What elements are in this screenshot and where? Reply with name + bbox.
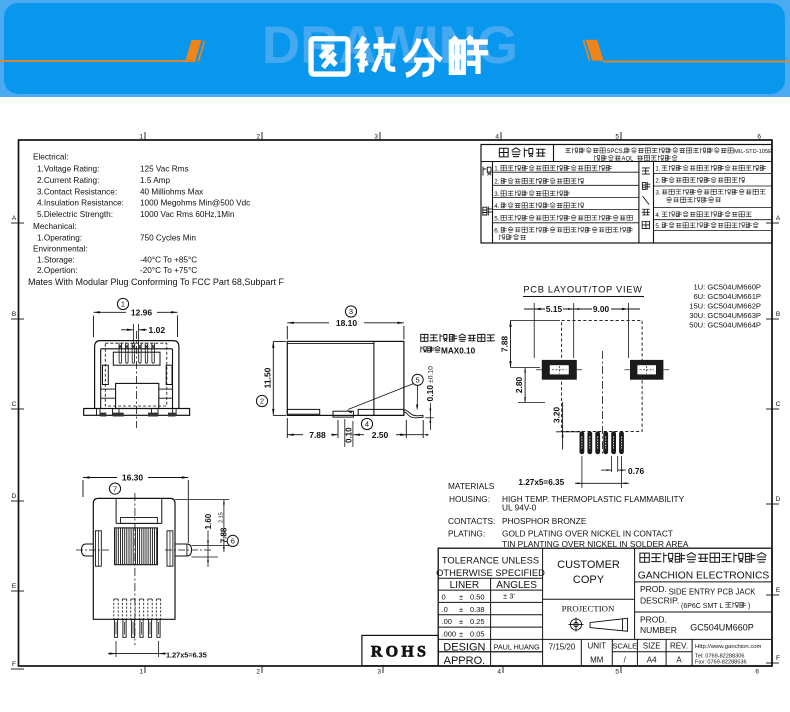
svg-text:COPY: COPY [573, 574, 605, 586]
svg-text:4.: 4. [494, 203, 499, 210]
svg-text:5PCS,: 5PCS, [607, 149, 625, 155]
svg-text:Environmental:: Environmental: [33, 245, 88, 254]
svg-text:E: E [12, 583, 17, 590]
svg-text:ROHS: ROHS [371, 644, 429, 661]
svg-text:15U: GC504UM662P: 15U: GC504UM662P [689, 302, 761, 311]
svg-text:4: 4 [365, 420, 369, 429]
svg-text:16.30: 16.30 [122, 473, 144, 483]
svg-text:2.Opertion:: 2.Opertion: [37, 266, 78, 275]
svg-text:PROJECTION: PROJECTION [562, 604, 615, 614]
svg-text:1: 1 [139, 134, 143, 141]
svg-text:APPRO.: APPRO. [444, 655, 486, 667]
svg-text:D: D [776, 496, 781, 503]
svg-text:AQL: AQL [622, 157, 635, 163]
svg-text:D: D [12, 493, 17, 500]
svg-text:±: ± [459, 617, 463, 626]
svg-text:CONTACTS:: CONTACTS: [448, 516, 495, 526]
svg-text:2.50: 2.50 [372, 430, 389, 440]
svg-text:5.Dielectric Strength:: 5.Dielectric Strength: [37, 210, 113, 219]
svg-text:1.27x5=6.35: 1.27x5=6.35 [518, 478, 564, 487]
svg-text:2.Current Rating:: 2.Current Rating: [37, 176, 99, 185]
svg-text:DESIGN: DESIGN [443, 642, 485, 654]
svg-text:5.: 5. [494, 215, 499, 222]
svg-text:): ) [748, 603, 750, 610]
svg-text:5: 5 [416, 376, 420, 385]
svg-text:3.20: 3.20 [552, 406, 562, 423]
svg-text:PROD.: PROD. [640, 584, 667, 594]
svg-text:HOUSING:: HOUSING: [449, 494, 490, 504]
svg-text:0.10: 0.10 [425, 385, 435, 402]
svg-text:40 Milliohms Max: 40 Milliohms Max [140, 188, 203, 197]
svg-text:3.Contact Resistance:: 3.Contact Resistance: [37, 188, 117, 197]
svg-text:B: B [776, 311, 780, 318]
svg-text:1.Voltage Rating:: 1.Voltage Rating: [37, 165, 99, 174]
svg-text:1U: GC504UM660P: 1U: GC504UM660P [693, 283, 761, 292]
svg-text:0.25: 0.25 [470, 617, 485, 626]
svg-text:6.: 6. [494, 227, 499, 234]
svg-text:±: ± [459, 593, 463, 602]
svg-text:1.Operating:: 1.Operating: [37, 234, 82, 243]
svg-text:5: 5 [615, 134, 619, 141]
svg-text:F: F [12, 661, 16, 668]
svg-text:Electrical:: Electrical: [33, 153, 69, 162]
svg-text:.00: .00 [442, 617, 452, 626]
svg-text:1: 1 [121, 300, 125, 309]
svg-text:.000: .000 [442, 630, 457, 639]
svg-text:7/15/20: 7/15/20 [549, 643, 576, 652]
svg-text:6: 6 [757, 134, 761, 141]
svg-text:4: 4 [495, 134, 499, 141]
svg-text:30U: GC504UM663P: 30U: GC504UM663P [689, 311, 761, 320]
svg-text:REV.: REV. [670, 642, 688, 651]
svg-text:A: A [12, 215, 17, 222]
svg-text:5.15: 5.15 [546, 304, 563, 314]
svg-text:0.38: 0.38 [470, 605, 485, 614]
svg-text:7.88: 7.88 [500, 336, 510, 353]
svg-text:5: 5 [615, 669, 619, 676]
svg-text:± 3': ± 3' [503, 592, 515, 601]
svg-text:E: E [776, 587, 781, 594]
svg-text:0.10: 0.10 [345, 427, 354, 443]
svg-text:CUSTOMER: CUSTOMER [557, 559, 620, 571]
svg-text:OTHERWISE SPECIFIED: OTHERWISE SPECIFIED [436, 567, 545, 578]
svg-text:2.: 2. [655, 178, 660, 185]
svg-text:±: ± [459, 605, 463, 614]
svg-text:(6P6C SMT L: (6P6C SMT L [681, 603, 723, 610]
svg-text:Mechanical:: Mechanical: [33, 222, 77, 231]
svg-text:MAX0.10: MAX0.10 [441, 346, 476, 355]
svg-text:GC504UM660P: GC504UM660P [690, 623, 754, 633]
svg-text:1.27x5=6.35: 1.27x5=6.35 [166, 651, 207, 660]
svg-text:6U: GC504UM661P: 6U: GC504UM661P [693, 292, 761, 301]
svg-text:3: 3 [377, 669, 381, 676]
svg-text:7.88: 7.88 [309, 430, 326, 440]
svg-text:1.5 Amp: 1.5 Amp [140, 176, 170, 185]
svg-text:6: 6 [231, 537, 235, 546]
svg-text:0.50: 0.50 [470, 593, 485, 602]
svg-text:A: A [676, 656, 682, 665]
svg-text:GOLD PLATING OVER NICKEL IN CO: GOLD PLATING OVER NICKEL IN CONTACT [502, 529, 673, 539]
svg-text:6: 6 [755, 669, 759, 676]
svg-text:F: F [776, 655, 780, 662]
svg-text:B: B [12, 311, 16, 318]
svg-text:/: / [624, 656, 627, 665]
svg-text:7: 7 [113, 484, 117, 493]
svg-text:Http://www.ganchion.com: Http://www.ganchion.com [695, 644, 762, 650]
svg-text:4.Insulation Resistance:: 4.Insulation Resistance: [37, 199, 124, 208]
svg-text:3: 3 [349, 307, 353, 316]
svg-text:0: 0 [442, 593, 446, 602]
svg-text:50U: GC504UM664P: 50U: GC504UM664P [689, 321, 761, 330]
svg-text:UL 94V-0: UL 94V-0 [502, 503, 537, 513]
svg-text:2.15: 2.15 [218, 512, 224, 523]
svg-text:PLATING:: PLATING: [448, 529, 485, 539]
svg-text:4.: 4. [655, 212, 660, 219]
svg-text:125 Vac Rms: 125 Vac Rms [140, 165, 189, 174]
svg-text:C: C [776, 401, 781, 408]
svg-text:PAUL HUANG: PAUL HUANG [494, 643, 540, 652]
svg-text:1000 Megohms Min@500 Vdc: 1000 Megohms Min@500 Vdc [140, 199, 250, 208]
svg-text:1.: 1. [494, 166, 499, 173]
svg-text:SIZE: SIZE [643, 642, 661, 651]
svg-text:5.: 5. [655, 223, 660, 230]
svg-text:MIL-STD-105E: MIL-STD-105E [734, 149, 772, 155]
svg-text:PCB LAYOUT/TOP VIEW: PCB LAYOUT/TOP VIEW [523, 285, 642, 295]
svg-text:UNIT: UNIT [587, 642, 606, 651]
svg-text:C: C [12, 401, 17, 408]
svg-text:11.50: 11.50 [262, 367, 272, 388]
svg-text:12.96: 12.96 [131, 307, 153, 317]
svg-text:SIDE ENTRY PCB JACK: SIDE ENTRY PCB JACK [669, 588, 757, 597]
svg-text:-20°C To +75°C: -20°C To +75°C [140, 266, 197, 275]
svg-text:Fax: 0769-82288536: Fax: 0769-82288536 [695, 660, 747, 666]
svg-text:2: 2 [256, 669, 260, 676]
svg-text:0.05: 0.05 [470, 630, 485, 639]
svg-text:2: 2 [260, 397, 264, 406]
svg-text:2.: 2. [494, 179, 499, 186]
svg-text:.0: .0 [442, 605, 448, 614]
svg-text:9.00: 9.00 [593, 304, 610, 314]
svg-text:1.: 1. [655, 166, 660, 173]
svg-text:2: 2 [256, 134, 260, 141]
svg-text:GANCHION ELECTRONICS: GANCHION ELECTRONICS [638, 571, 770, 582]
svg-text:TOLERANCE UNLESS: TOLERANCE UNLESS [442, 555, 539, 566]
svg-text:3.: 3. [494, 191, 499, 198]
svg-text:DESCRIP.: DESCRIP. [640, 596, 679, 606]
svg-text:3.: 3. [655, 189, 660, 196]
svg-text:MM: MM [590, 656, 604, 665]
svg-text:1000 Vac Rms 60Hz,1Min: 1000 Vac Rms 60Hz,1Min [140, 210, 235, 219]
svg-text:1.Storage:: 1.Storage: [37, 256, 75, 265]
svg-text:MATERIALS: MATERIALS [448, 481, 495, 491]
svg-text:18.10: 18.10 [336, 318, 358, 328]
svg-text:1.60: 1.60 [204, 513, 213, 529]
svg-text:4: 4 [497, 669, 501, 676]
svg-text:±: ± [459, 630, 463, 639]
svg-text:1.02: 1.02 [149, 325, 166, 335]
svg-text:LINER: LINER [450, 580, 479, 591]
svg-text:A4: A4 [647, 656, 657, 665]
svg-text:TIN PLANTING OVER NICKEL IN SO: TIN PLANTING OVER NICKEL IN SOLDER AREA [502, 539, 689, 549]
svg-text:NUMBER: NUMBER [640, 625, 677, 635]
svg-text:SCALE: SCALE [612, 642, 637, 651]
svg-text:PHOSPHOR BRONZE: PHOSPHOR BRONZE [502, 516, 587, 526]
svg-text:Mates With Modular Plug Confor: Mates With Modular Plug Conforming To FC… [28, 277, 284, 287]
svg-text:1: 1 [139, 669, 143, 676]
svg-text:A: A [776, 215, 781, 222]
svg-text:-40°C To +85°C: -40°C To +85°C [140, 256, 197, 265]
svg-text:PROD.: PROD. [640, 615, 667, 625]
svg-text:±0.10: ±0.10 [428, 366, 435, 383]
svg-text:ANGLES: ANGLES [496, 580, 537, 591]
svg-text:3: 3 [374, 134, 378, 141]
svg-text:0.76: 0.76 [628, 466, 645, 476]
svg-text:750 Cycles Min: 750 Cycles Min [140, 234, 196, 243]
svg-text:2.80: 2.80 [514, 377, 524, 394]
